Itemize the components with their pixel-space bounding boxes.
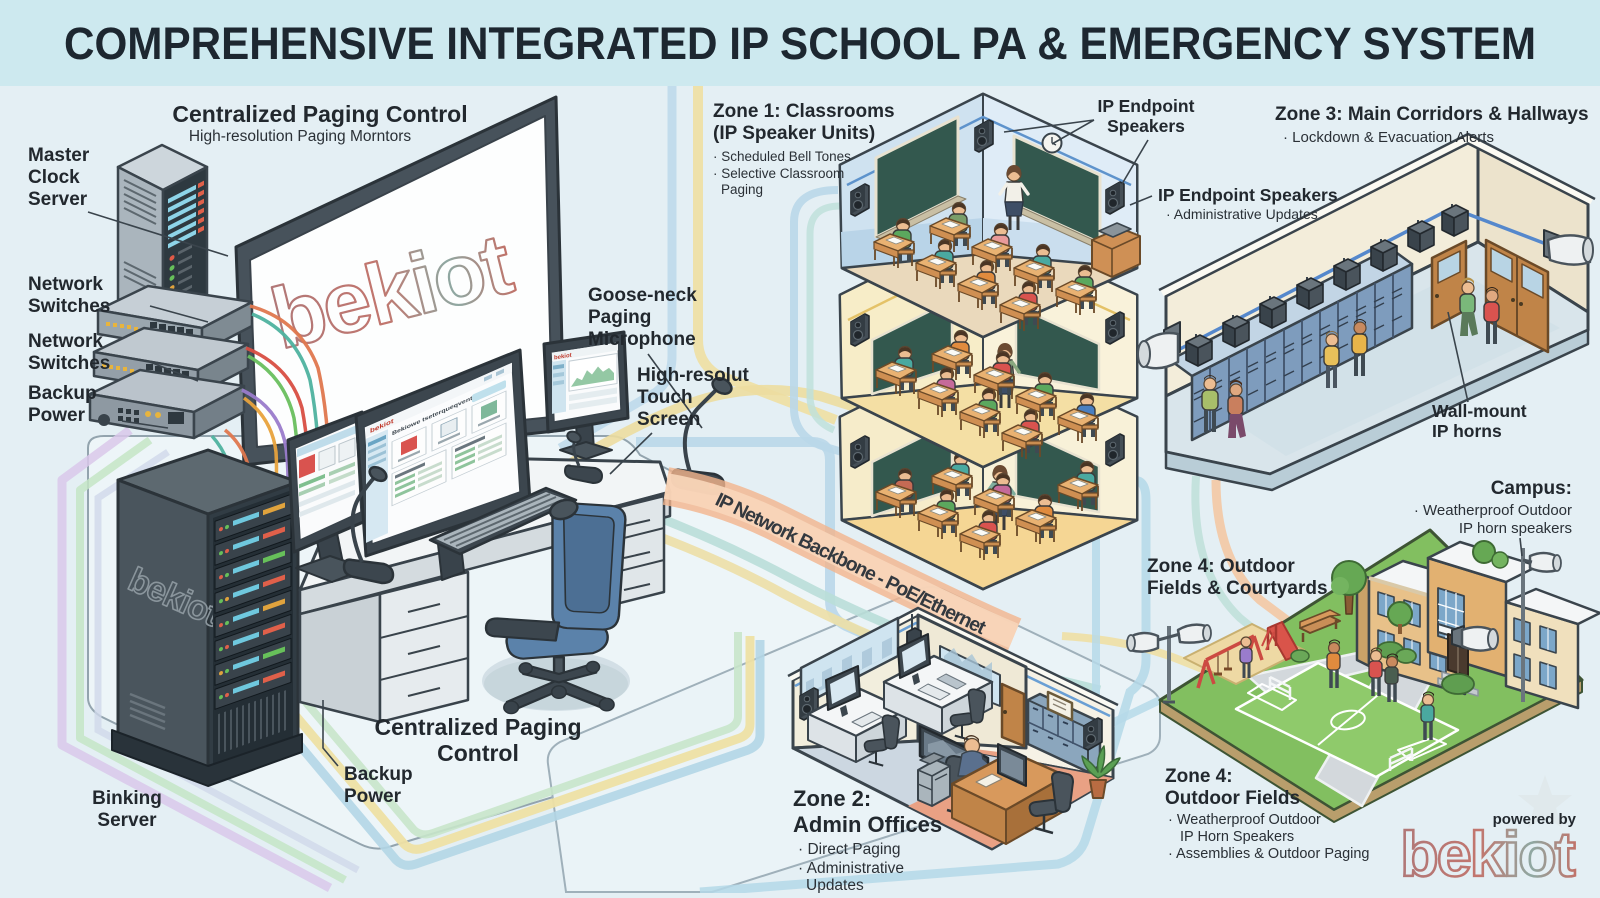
svg-text:Clock: Clock xyxy=(28,167,80,188)
svg-text:· Scheduled Bell Tones: · Scheduled Bell Tones xyxy=(713,149,851,164)
svg-text:Master: Master xyxy=(28,145,90,166)
svg-text:Switches: Switches xyxy=(28,353,110,374)
svg-text:· Assemblies & Outdoor Paging: · Assemblies & Outdoor Paging xyxy=(1168,846,1370,862)
svg-text:· Administrative Updates: · Administrative Updates xyxy=(1166,206,1318,222)
svg-text:Fields & Courtyards: Fields & Courtyards xyxy=(1147,578,1328,599)
svg-text:Zone 4: Outdoor: Zone 4: Outdoor xyxy=(1147,556,1295,577)
svg-text:Zone 4:: Zone 4: xyxy=(1165,766,1233,787)
svg-text:Network: Network xyxy=(28,274,103,295)
svg-text:· Weatherproof Outdoor: · Weatherproof Outdoor xyxy=(1168,812,1321,828)
svg-text:Zone 3: Main Corridors & Hallw: Zone 3: Main Corridors & Hallways xyxy=(1275,104,1589,125)
svg-text:Microphone: Microphone xyxy=(588,329,696,350)
svg-text:(IP Speaker Units): (IP Speaker Units) xyxy=(713,123,875,144)
svg-text:· Weatherproof Outdoor: · Weatherproof Outdoor xyxy=(1414,502,1572,519)
svg-text:Switches: Switches xyxy=(28,296,110,317)
svg-text:Outdoor Fields: Outdoor Fields xyxy=(1165,788,1300,809)
svg-text:Updates: Updates xyxy=(806,877,864,893)
svg-text:High-resolut: High-resolut xyxy=(637,365,750,386)
svg-text:Goose-neck: Goose-neck xyxy=(588,285,697,306)
svg-text:Backup: Backup xyxy=(344,764,413,785)
svg-text:COMPREHENSIVE INTEGRATED IP SC: COMPREHENSIVE INTEGRATED IP SCHOOL PA & … xyxy=(64,18,1536,69)
svg-text:Power: Power xyxy=(344,786,402,807)
svg-text:IP horn speakers: IP horn speakers xyxy=(1459,520,1572,537)
svg-text:Zone 2:: Zone 2: xyxy=(793,786,871,811)
svg-text:· Lockdown & Evacuation Alerts: · Lockdown & Evacuation Alerts xyxy=(1283,129,1494,146)
svg-text:· Administrative: · Administrative xyxy=(798,860,904,877)
svg-text:Admin Offices: Admin Offices xyxy=(793,812,942,837)
svg-text:Touch: Touch xyxy=(637,387,693,408)
svg-text:· Selective Classroom: · Selective Classroom xyxy=(713,166,844,181)
svg-text:Wall-mount: Wall-mount xyxy=(1432,401,1527,421)
svg-text:Network: Network xyxy=(28,331,103,352)
svg-text:Campus:: Campus: xyxy=(1491,478,1572,499)
svg-text:· Direct Paging: · Direct Paging xyxy=(798,841,901,858)
svg-text:Server: Server xyxy=(28,189,88,210)
svg-text:Server: Server xyxy=(97,810,157,831)
svg-text:Centralized Paging: Centralized Paging xyxy=(374,714,581,740)
svg-text:IP Horn Speakers: IP Horn Speakers xyxy=(1180,829,1294,845)
svg-text:Centralized Paging Control: Centralized Paging Control xyxy=(172,101,467,127)
svg-text:Screen: Screen xyxy=(637,409,700,430)
svg-text:IP Endpoint: IP Endpoint xyxy=(1098,96,1195,116)
svg-text:Binking: Binking xyxy=(92,788,162,809)
svg-text:Control: Control xyxy=(437,740,519,766)
svg-text:bekiot: bekiot xyxy=(1400,820,1576,890)
svg-text:High-resolution Paging Morntor: High-resolution Paging Morntors xyxy=(189,128,412,145)
svg-text:IP horns: IP horns xyxy=(1432,421,1502,441)
svg-text:Paging: Paging xyxy=(721,182,763,197)
svg-text:Paging: Paging xyxy=(588,307,651,328)
svg-text:Power: Power xyxy=(28,405,86,426)
svg-text:Backup: Backup xyxy=(28,383,97,404)
svg-text:IP Endpoint Speakers: IP Endpoint Speakers xyxy=(1158,185,1338,205)
svg-text:Speakers: Speakers xyxy=(1107,116,1185,136)
svg-text:Zone 1: Classrooms: Zone 1: Classrooms xyxy=(713,101,895,122)
